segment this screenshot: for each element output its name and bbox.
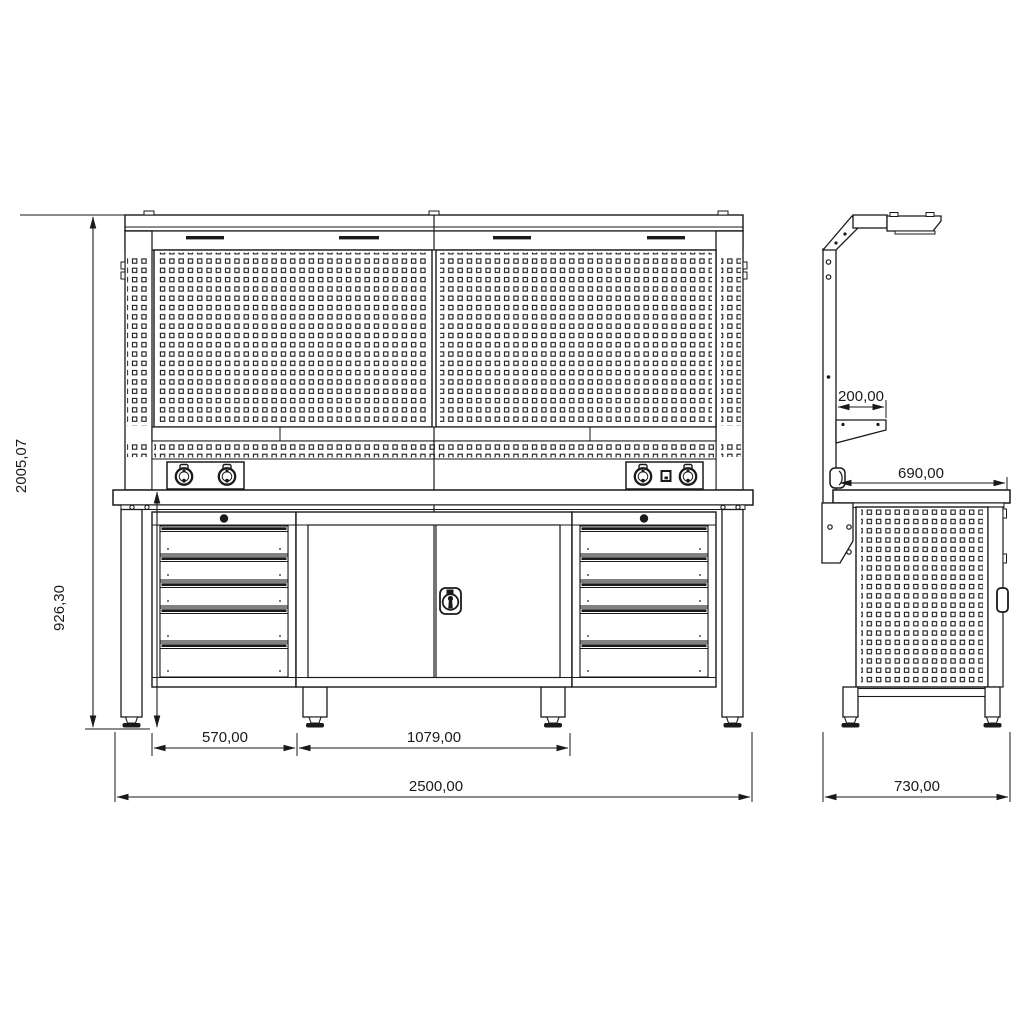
- drawer-handle-icon: [582, 609, 707, 612]
- worktop-lip: [121, 505, 745, 510]
- knob-icon: [220, 514, 228, 522]
- worktop-slab: [113, 490, 753, 505]
- door-lock-icon: [440, 588, 461, 614]
- side-handle-icon: [997, 588, 1008, 612]
- bolt-hole-icon: [130, 505, 134, 509]
- power-switch-icon: [662, 471, 671, 481]
- pegboard-panels: [154, 250, 716, 427]
- adjustable-foot-icon: [842, 717, 860, 728]
- side-socket-housing: [830, 468, 845, 488]
- worktop-side-slab: [833, 490, 1010, 503]
- leg-outer-right: [722, 510, 743, 718]
- workbench-technical-drawing: 2005,07 926,30 570,00 1079,00 2500,00: [0, 0, 1024, 1024]
- bolt-hole-icon: [847, 550, 851, 554]
- rivet-icon: [841, 423, 844, 426]
- wall-tab-icon: [743, 262, 747, 269]
- dim-label-light-arm-depth: 200,00: [838, 388, 884, 405]
- rivet-icon: [827, 375, 831, 379]
- drawer-handle-icon: [162, 557, 287, 560]
- pegboard-holes-right: [440, 253, 712, 425]
- leg-side-front: [843, 687, 858, 717]
- canopy-tab-right: [718, 211, 728, 215]
- dim-label-drawer-unit-width: 570,00: [202, 729, 248, 746]
- adjustable-foot-icon: [544, 717, 562, 728]
- bolt-hole-icon: [828, 525, 832, 529]
- drawing-canvas: 2005,07 926,30 570,00 1079,00 2500,00: [0, 0, 1024, 1024]
- back-post: [823, 213, 941, 504]
- drawer: [580, 608, 708, 641]
- front-view: [113, 211, 753, 728]
- side-pegboard: [856, 507, 1008, 687]
- drawer-handle-icon: [162, 527, 287, 530]
- dim-worktop-height: 926,30: [51, 490, 160, 727]
- drawer-handle-icon: [582, 557, 707, 560]
- adjustable-foot-icon: [984, 717, 1002, 728]
- bottom-rail-side: [858, 689, 985, 697]
- side-strip-right-holes: [721, 256, 741, 426]
- drawer: [580, 526, 708, 554]
- drawer-handle-icon: [582, 527, 707, 530]
- leg-side-back: [985, 687, 1000, 717]
- bolt-hole-icon: [826, 260, 830, 264]
- drawer-unit-right: [572, 512, 716, 687]
- frame-plate: [822, 503, 853, 563]
- task-light-icon: [853, 213, 941, 235]
- bolt-hole-icon: [145, 505, 149, 509]
- dim-label-total-height: 2005,07: [13, 439, 30, 493]
- socket-panel-right: [626, 462, 703, 489]
- drawer: [160, 582, 288, 606]
- drawer: [160, 556, 288, 580]
- wall-tab-icon: [121, 262, 125, 269]
- pegboard-holes-left: [158, 253, 428, 425]
- cabinet-door-left: [308, 525, 434, 678]
- side-pegboard-holes: [861, 510, 983, 684]
- wall-tab-icon: [743, 272, 747, 279]
- bolt-hole-icon: [847, 525, 851, 529]
- rivet-icon: [843, 232, 846, 235]
- worktop-side: [833, 490, 1010, 508]
- bolt-hole-icon: [736, 505, 740, 509]
- light-fixture-icon: [339, 236, 379, 239]
- rivet-icon: [876, 423, 879, 426]
- leg-inner-left: [303, 687, 327, 717]
- dim-light-arm-depth: 200,00: [838, 388, 886, 418]
- worktop: [113, 490, 753, 512]
- hinge-tab-icon: [1003, 509, 1007, 518]
- dim-label-worktop-depth: 690,00: [898, 465, 944, 482]
- light-fixture-icon: [493, 236, 531, 239]
- socket-panel-left: [167, 462, 244, 489]
- drawer-handle-icon: [162, 609, 287, 612]
- adjustable-foot-icon: [306, 717, 324, 728]
- center-cabinet: [296, 512, 572, 687]
- side-strip-left-holes-lower: [127, 441, 147, 457]
- dim-label-center-cabinet-width: 1079,00: [407, 729, 461, 746]
- dim-label-total-width: 2500,00: [409, 778, 463, 795]
- knob-icon: [640, 514, 648, 522]
- adjustable-foot-icon: [724, 717, 742, 728]
- dim-worktop-depth: 690,00: [840, 465, 1007, 490]
- light-fixture-icon: [647, 236, 685, 239]
- drawer: [160, 643, 288, 677]
- dim-total-depth: 730,00: [823, 732, 1010, 802]
- drawer-handle-icon: [162, 583, 287, 586]
- light-fixture-icon: [186, 236, 224, 239]
- drawer: [580, 556, 708, 580]
- dim-label-total-depth: 730,00: [894, 778, 940, 795]
- tool-rail: [152, 427, 716, 441]
- drawer-unit-left: [152, 512, 296, 687]
- adjustable-foot-icon: [123, 717, 141, 728]
- dim-drawer-unit-width: 570,00: [152, 729, 297, 756]
- shelf-bracket: [836, 420, 886, 443]
- side-strip-right-holes-lower: [721, 441, 741, 457]
- leg-inner-right: [541, 687, 565, 717]
- canopy-tab-left: [144, 211, 154, 215]
- drawer-handle-icon: [582, 644, 707, 647]
- upper-band: [125, 231, 743, 250]
- drawer-handle-icon: [162, 644, 287, 647]
- bolt-hole-icon: [721, 505, 725, 509]
- canopy-tab-center: [429, 211, 439, 215]
- leg-outer-left: [121, 510, 142, 718]
- drawer: [580, 643, 708, 677]
- legs-side: [842, 687, 1002, 728]
- hinge-tab-icon: [1003, 554, 1007, 563]
- dim-center-cabinet-width: 1079,00: [299, 729, 570, 756]
- drawer: [160, 526, 288, 554]
- side-strip-left-holes: [127, 256, 147, 426]
- wall-tab-icon: [121, 272, 125, 279]
- bolt-hole-icon: [826, 275, 830, 279]
- drawer: [580, 582, 708, 606]
- drawer-handle-icon: [582, 583, 707, 586]
- feet-front: [123, 717, 742, 728]
- drawer: [160, 608, 288, 641]
- dim-label-worktop-height: 926,30: [51, 585, 68, 631]
- rivet-icon: [834, 241, 837, 244]
- canopy-shelf: [125, 211, 743, 231]
